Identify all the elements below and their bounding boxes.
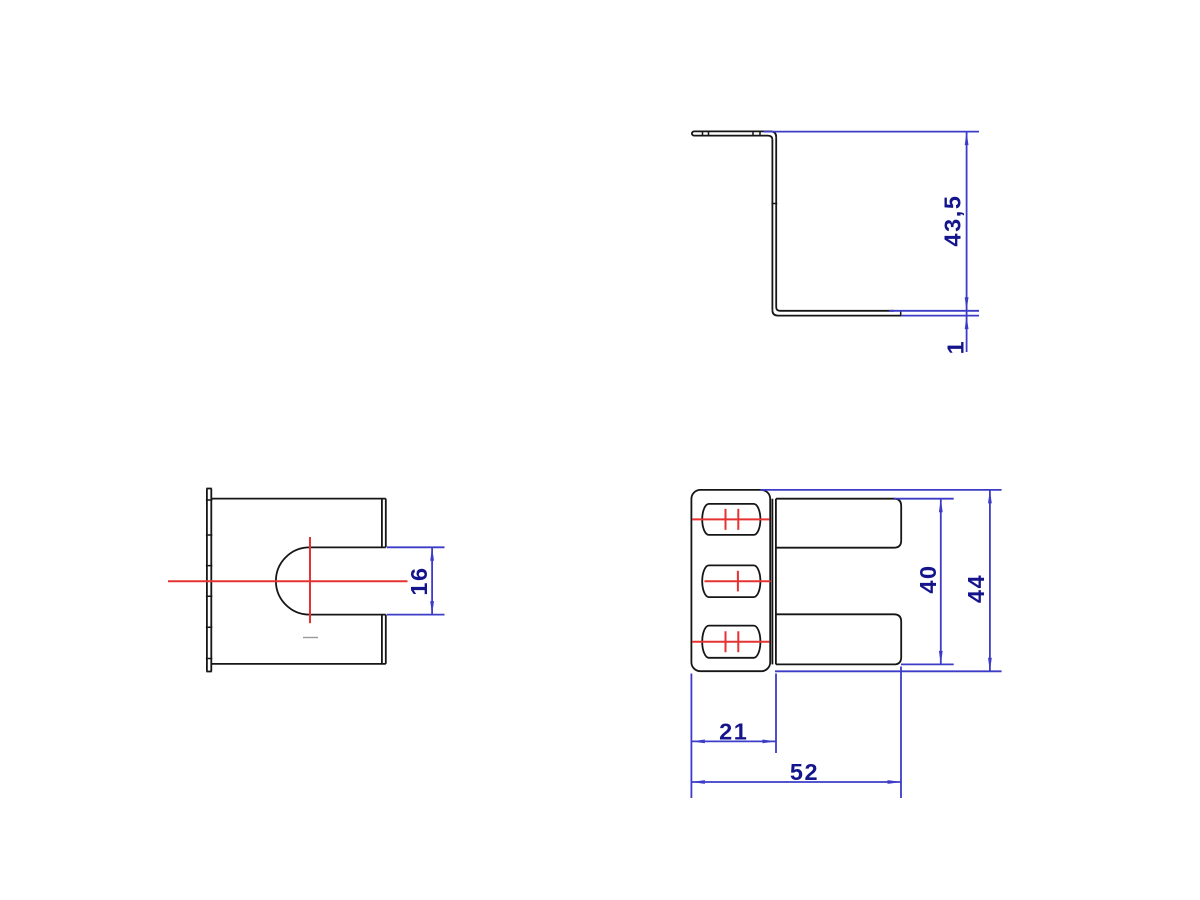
svg-text:44: 44 xyxy=(963,574,989,603)
svg-text:1: 1 xyxy=(943,340,969,355)
svg-text:16: 16 xyxy=(406,566,432,595)
svg-text:43,5: 43,5 xyxy=(940,194,966,246)
svg-text:40: 40 xyxy=(915,564,941,593)
svg-text:52: 52 xyxy=(790,759,819,785)
svg-text:21: 21 xyxy=(719,718,748,744)
